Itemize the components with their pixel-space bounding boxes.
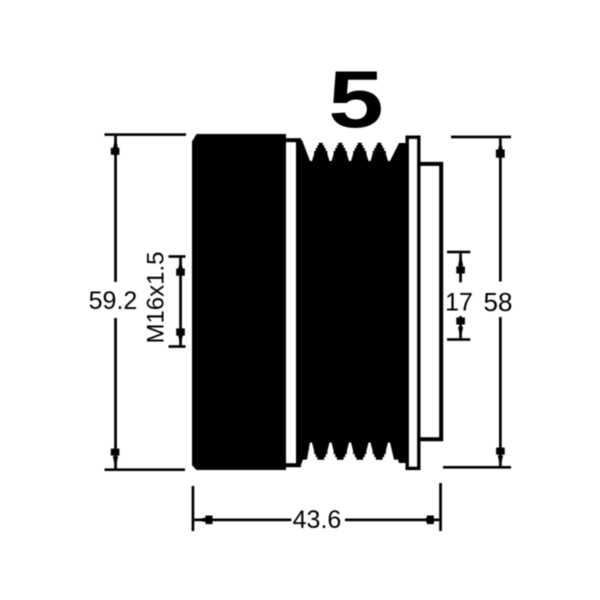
svg-text:M16x1.5: M16x1.5 bbox=[143, 251, 170, 343]
svg-text:43.6: 43.6 bbox=[293, 506, 342, 534]
svg-text:5: 5 bbox=[328, 55, 383, 145]
svg-text:17: 17 bbox=[445, 289, 473, 317]
svg-text:58: 58 bbox=[484, 287, 513, 317]
svg-text:59.2: 59.2 bbox=[89, 287, 138, 315]
